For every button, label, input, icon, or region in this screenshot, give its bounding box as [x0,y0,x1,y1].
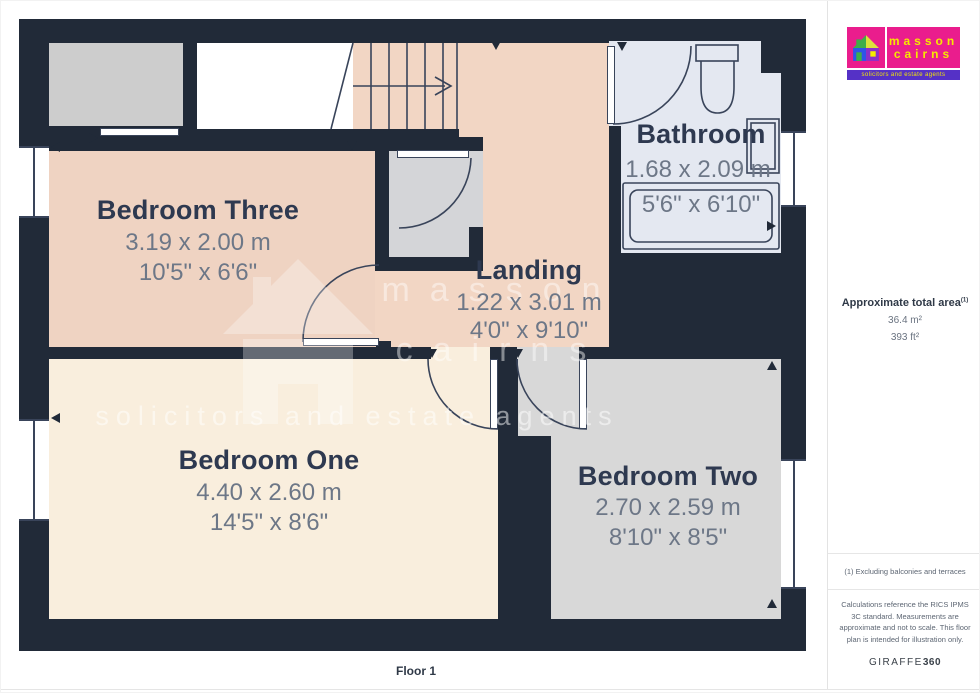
bedroom-one-name: Bedroom One [179,447,360,474]
logo-name-line1: masson [887,35,960,48]
landing-name: Landing [476,257,582,284]
closet-mid-door-opening [469,151,483,227]
window-bathroom [781,131,806,207]
page-bottom-border [1,689,980,690]
info-sidebar: masson cairns solicitors and estate agen… [827,1,980,689]
door-stop-marker [51,413,60,423]
closet-mid-floor [389,151,469,257]
house-logo-icon [847,27,885,68]
bedroom-one-imperial: 14'5" x 8'6" [210,511,328,535]
bedroom-two-imperial: 8'10" x 8'5" [609,526,727,550]
brand-name: GIRAFFE [869,657,923,668]
watermark-line3: solicitors and estate agents [95,403,618,430]
sidebar-divider [828,589,980,590]
bathroom-name: Bathroom [636,121,765,148]
logo-name: masson cairns [887,27,960,68]
total-area-heading-text: Approximate total area [842,297,961,309]
bedroom-three-imperial: 10'5" x 6'6" [139,261,257,285]
bathroom-wall-notch [761,41,781,73]
logo-tagline: solicitors and estate agents [847,70,960,80]
closet-top-left-floor [49,43,183,126]
logo-name-line2: cairns [887,48,960,61]
bedroom-one-metric: 4.40 x 2.60 m [196,481,341,505]
disclaimer-text: Calculations reference the RICS IPMS 3C … [836,599,974,646]
door-stop-marker [347,141,357,150]
floorplan-page: masson cairns solicitors and estate agen… [0,0,980,693]
door-stop-marker [767,361,777,370]
total-area-footnote-ref: (1) [961,297,968,303]
bathroom-left-wall [609,126,621,253]
bedroom-three-name: Bedroom Three [97,197,299,224]
floor-label: Floor 1 [396,664,436,678]
bathroom-imperial: 5'6" x 6'10" [642,193,760,217]
door-stop-marker [767,599,777,608]
bathroom-metric: 1.68 x 2.09 m [625,158,770,182]
landing-metric: 1.22 x 3.01 m [456,291,601,315]
brand-suffix: 360 [923,657,941,668]
door-leaf-bathroom [607,46,615,124]
giraffe360-brand: GIRAFFE360 [828,657,980,668]
window-left-upper [19,146,49,218]
landing-imperial: 4'0" x 9'10" [470,319,588,343]
door-stop-marker [767,221,776,231]
door-leaf-closet-mid [397,150,469,158]
total-area-heading: Approximate total area(1) [828,297,980,309]
sidebar-divider [828,553,980,554]
total-area-block: Approximate total area(1) 36.4 m² 393 ft… [828,297,980,343]
bedroom-two-name: Bedroom Two [578,463,758,490]
bedroom-two-metric: 2.70 x 2.59 m [595,496,740,520]
door-stop-marker [491,41,501,50]
window-bedroom-two [781,459,806,589]
total-area-metric: 36.4 m² [828,315,980,326]
bedroom-three-metric: 3.19 x 2.00 m [125,231,270,255]
door-stop-marker [89,133,98,143]
total-area-imperial: 393 ft² [828,332,980,343]
door-stop-marker [51,142,60,152]
footnote-exclusions: (1) Excluding balconies and terraces [836,566,974,578]
window-left-lower [19,419,49,521]
stair-void [197,43,353,129]
masson-cairns-logo: masson cairns solicitors and estate agen… [847,27,960,80]
door-leaf-closet-top-left [100,128,179,136]
door-stop-marker [617,42,627,51]
